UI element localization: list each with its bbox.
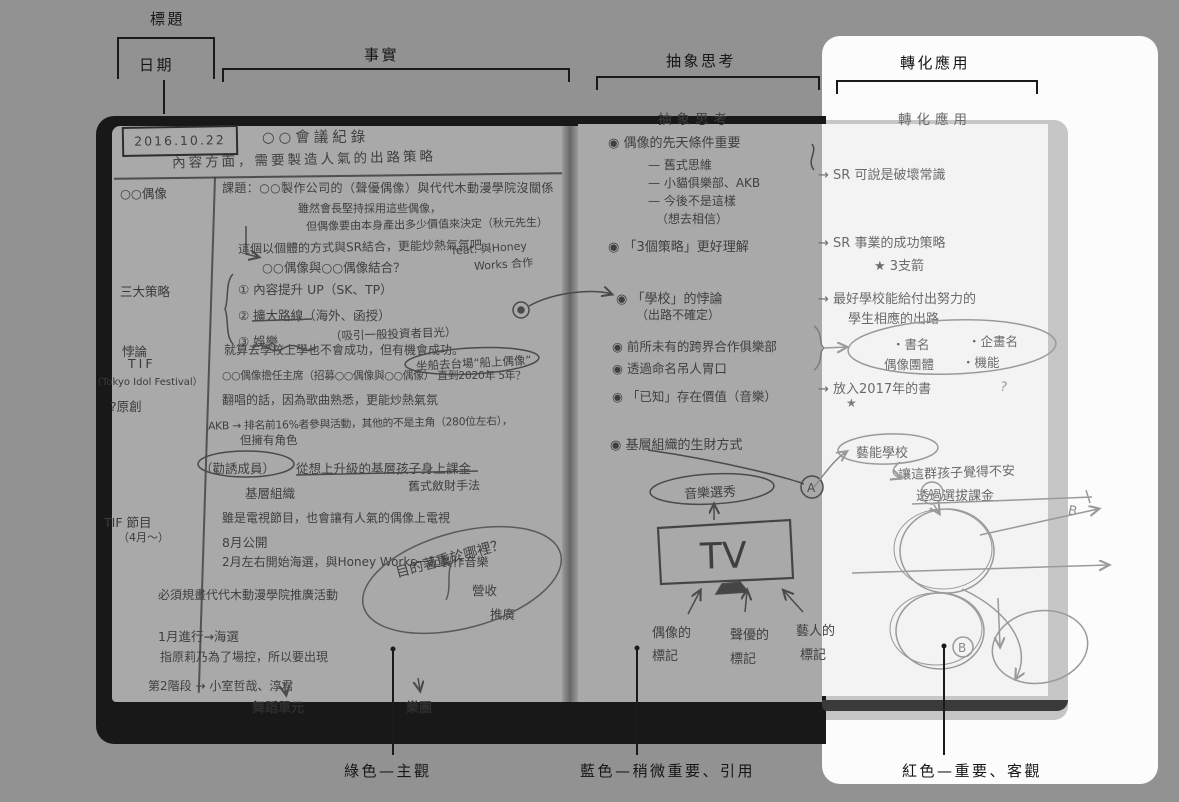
line-revenue: 營收 (472, 580, 497, 599)
margin-label-tif: TIF (128, 356, 156, 371)
line-band: 樂團 (406, 697, 432, 716)
line-cover-song: 翻唱的話，因為歌曲熟悉，更能炒熱氣氛 (222, 391, 438, 408)
mark-talent-a: 藝人的 (796, 620, 835, 639)
annotation-abstract-label: 抽象思考 (666, 50, 736, 71)
apply-header: 轉化應用 (898, 108, 972, 128)
annotation-date-label: 日期 (139, 54, 174, 75)
oval-book-name: ・書名 (892, 334, 930, 353)
margin-label-tif-full: （Tokyo Idol Festival） (92, 373, 203, 388)
line-tv-show: 雖是電視節目，也會讓有人氣的偶像上電視 (222, 509, 450, 526)
date-value: 2016.10.22 (134, 132, 226, 149)
apply-r3-b: 學生相應的出路 (848, 308, 939, 327)
margin-label-idol: ○○偶像 (120, 183, 167, 202)
oval-plan-name: ・企畫名 (968, 331, 1018, 350)
abstract-b3: ◉ 「學校」的悖論 (616, 288, 722, 307)
abstract-b3-1: （出路不確定） (636, 306, 720, 323)
annotation-facts-bracket (222, 68, 570, 82)
music-audition-label: 音樂選秀 (684, 481, 737, 503)
line-topic-note1: 雖然會長堅持採用這些偶像， (298, 200, 441, 216)
line-topic: 課題：○○製作公司的（聲優偶像）與代代木動漫學院沒關係 (222, 179, 554, 196)
annotation-apply-label: 轉化應用 (900, 52, 970, 73)
apply-uneasy: 讓這群孩子覺得不安 (898, 460, 1016, 483)
margin-label-program-2: （4月～） (118, 529, 169, 545)
annotation-blue-label: 藍色—稍微重要、引用 (580, 760, 755, 781)
abstract-b1-4: （想去相信） (656, 210, 728, 227)
abstract-b7: ◉ 基層組織的生財方式 (610, 434, 742, 453)
line-stage2: 第2階段 → 小室哲哉、淳君 (148, 677, 293, 694)
line-combine: ○○偶像與○○偶像結合？ (262, 257, 406, 276)
line-paradox: 就算去學校上學也不會成功，但有機會成功。 (224, 341, 464, 358)
abstract-b1: ◉ 偶像的先天條件重要 (608, 132, 740, 151)
abstract-b1-3: — 今後不是這樣 (648, 192, 736, 209)
line-jan: 1月進行→海選 (158, 626, 239, 645)
line-base-org: 基層組織 (245, 483, 295, 502)
line-strategy-2: ② 擴大路線（海外、函授） (238, 305, 391, 324)
abstract-b5: ◉ 透過命名吊人胃口 (612, 358, 727, 377)
line-chair: ○○偶像擔任主席（招募○○偶像與○○偶像） 直到2020年 5年？ (222, 367, 526, 383)
mark-idol-b: 標記 (652, 645, 678, 664)
line-sashihara: 指原莉乃為了場控，所以要出現 (160, 648, 328, 665)
blue-leader-line (636, 649, 638, 755)
oval-function: ・機能 (962, 352, 1000, 371)
annotation-red-label: 紅色—重要、客觀 (902, 760, 1042, 781)
mark-seiyuu-a: 聲優的 (730, 624, 769, 643)
annotation-title-label: 標題 (150, 8, 185, 29)
mark-idol-a: 偶像的 (652, 622, 691, 641)
line-plan: 必須規畫代代木動漫學院推廣活動 (158, 586, 338, 603)
apply-r2-arrows: ★ 3支箭 (874, 255, 924, 274)
line-akb-2: 但擁有角色 (240, 432, 298, 448)
line-dance: 舞蹈單元 (252, 697, 304, 716)
right-page-highlighted (822, 124, 1048, 696)
abstract-b1-1: — 舊式思維 (648, 156, 712, 173)
apply-r3-a: → 最好學校能給付出努力的 (818, 288, 976, 307)
abstract-b2: ◉ 「3個策略」更好理解 (608, 236, 749, 255)
mark-seiyuu-b: 標記 (730, 648, 756, 667)
abstract-header: 抽象思考 (658, 108, 732, 128)
annotation-apply-bracket (836, 80, 1038, 94)
annotation-green-label: 綠色—主觀 (344, 760, 432, 781)
notebook-method-figure: 2016.10.22 ○○會議紀錄 內容方面，需要製造人氣的出路策略 ○○偶像 … (0, 0, 1179, 802)
oval-idol-group: 偶像團體 (884, 354, 934, 373)
abstract-b6: ◉ 「已知」存在價值（音樂） (612, 386, 777, 405)
line-recruit-2: 從想上升級的基層孩子身上課金 (296, 458, 471, 477)
red-leader-line (943, 647, 945, 755)
apply-r4: → 放入2017年的書 (818, 378, 931, 397)
page-gutter (562, 126, 578, 702)
abstract-b4: ◉ 前所未有的跨界合作俱樂部 (612, 336, 777, 355)
apply-r1: → SR 可說是破壞常識 (818, 164, 945, 183)
line-money-method: 舊式斂財手法 (408, 476, 480, 494)
note-title: ○○會議紀錄 (262, 126, 369, 147)
margin-label-strategies: 三大策略 (120, 281, 170, 300)
line-aug: 8月公開 (222, 532, 267, 551)
annotation-abstract-bracket (596, 76, 820, 90)
annotation-date-line (163, 80, 165, 114)
apply-school: 藝能學校 (856, 442, 908, 461)
apply-r2: → SR 事業的成功策略 (818, 232, 945, 251)
annotation-facts-label: 事實 (364, 44, 399, 65)
apply-r4-star: ★ (846, 396, 857, 410)
book-cover-bottom-edge (822, 700, 1068, 711)
line-recruit: （勸誘成員） (200, 458, 275, 477)
margin-label-original: ?原創 (110, 396, 142, 415)
mark-talent-b: 標記 (800, 644, 826, 663)
apply-charge: 透過選拔課金 (916, 485, 994, 504)
green-leader-line (392, 650, 394, 755)
line-strategy-1: ① 內容提升 UP（SK、TP） (238, 279, 393, 298)
line-promo: 推廣 (490, 604, 515, 623)
abstract-b1-2: — 小貓俱樂部、AKB (648, 174, 760, 191)
